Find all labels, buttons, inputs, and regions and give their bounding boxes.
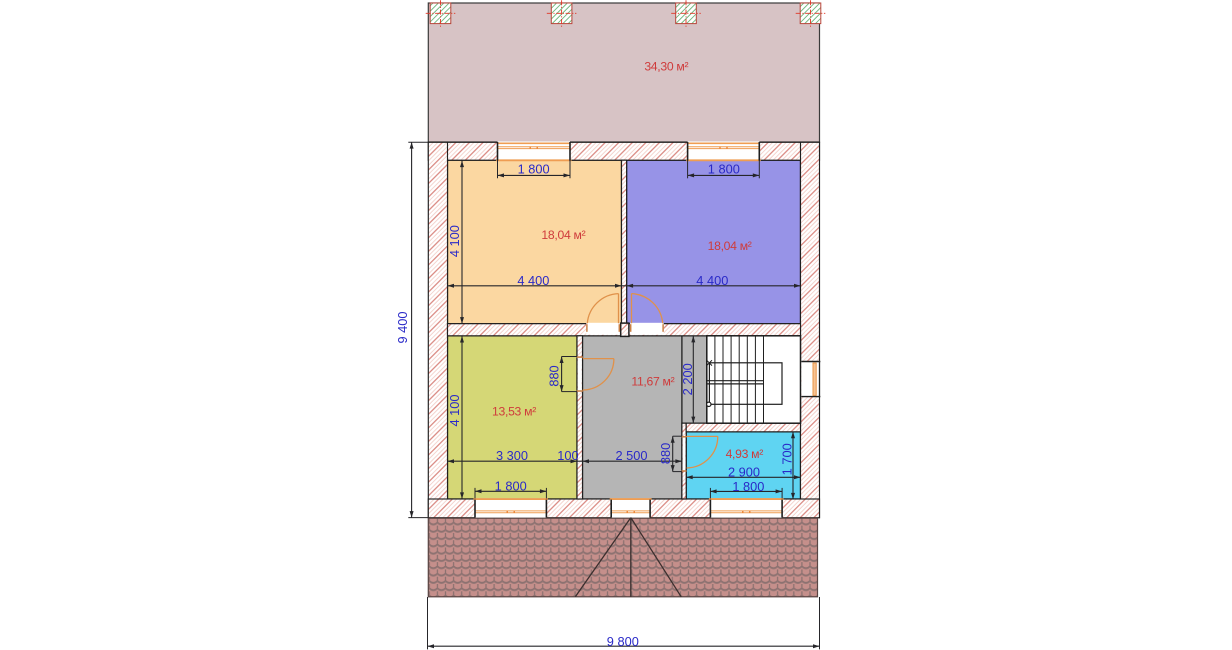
svg-text:2 200: 2 200	[680, 363, 695, 395]
svg-text:100: 100	[557, 448, 578, 463]
svg-text:880: 880	[547, 365, 562, 386]
svg-text:4,93 м²: 4,93 м²	[726, 447, 764, 461]
svg-text:34,30 м²: 34,30 м²	[644, 59, 688, 73]
svg-text:2 900: 2 900	[728, 465, 760, 480]
svg-text:11,67 м²: 11,67 м²	[631, 374, 674, 388]
svg-text:9 400: 9 400	[395, 311, 410, 343]
svg-text:13,53 м²: 13,53 м²	[492, 405, 536, 419]
svg-text:1 800: 1 800	[732, 479, 764, 494]
svg-text:4 100: 4 100	[447, 225, 462, 257]
svg-text:3 300: 3 300	[496, 448, 528, 463]
svg-text:1 700: 1 700	[779, 443, 794, 475]
svg-text:1 800: 1 800	[495, 479, 527, 494]
svg-text:4 100: 4 100	[447, 394, 462, 426]
svg-text:1 800: 1 800	[518, 161, 550, 176]
svg-text:4 400: 4 400	[696, 273, 728, 288]
svg-text:880: 880	[658, 443, 673, 464]
svg-text:18,04 м²: 18,04 м²	[541, 228, 585, 242]
svg-text:9 800: 9 800	[607, 634, 639, 649]
svg-text:18,04 м²: 18,04 м²	[708, 239, 752, 253]
svg-text:1 800: 1 800	[708, 161, 740, 176]
svg-text:4 400: 4 400	[517, 273, 549, 288]
svg-text:2 500: 2 500	[615, 448, 647, 463]
